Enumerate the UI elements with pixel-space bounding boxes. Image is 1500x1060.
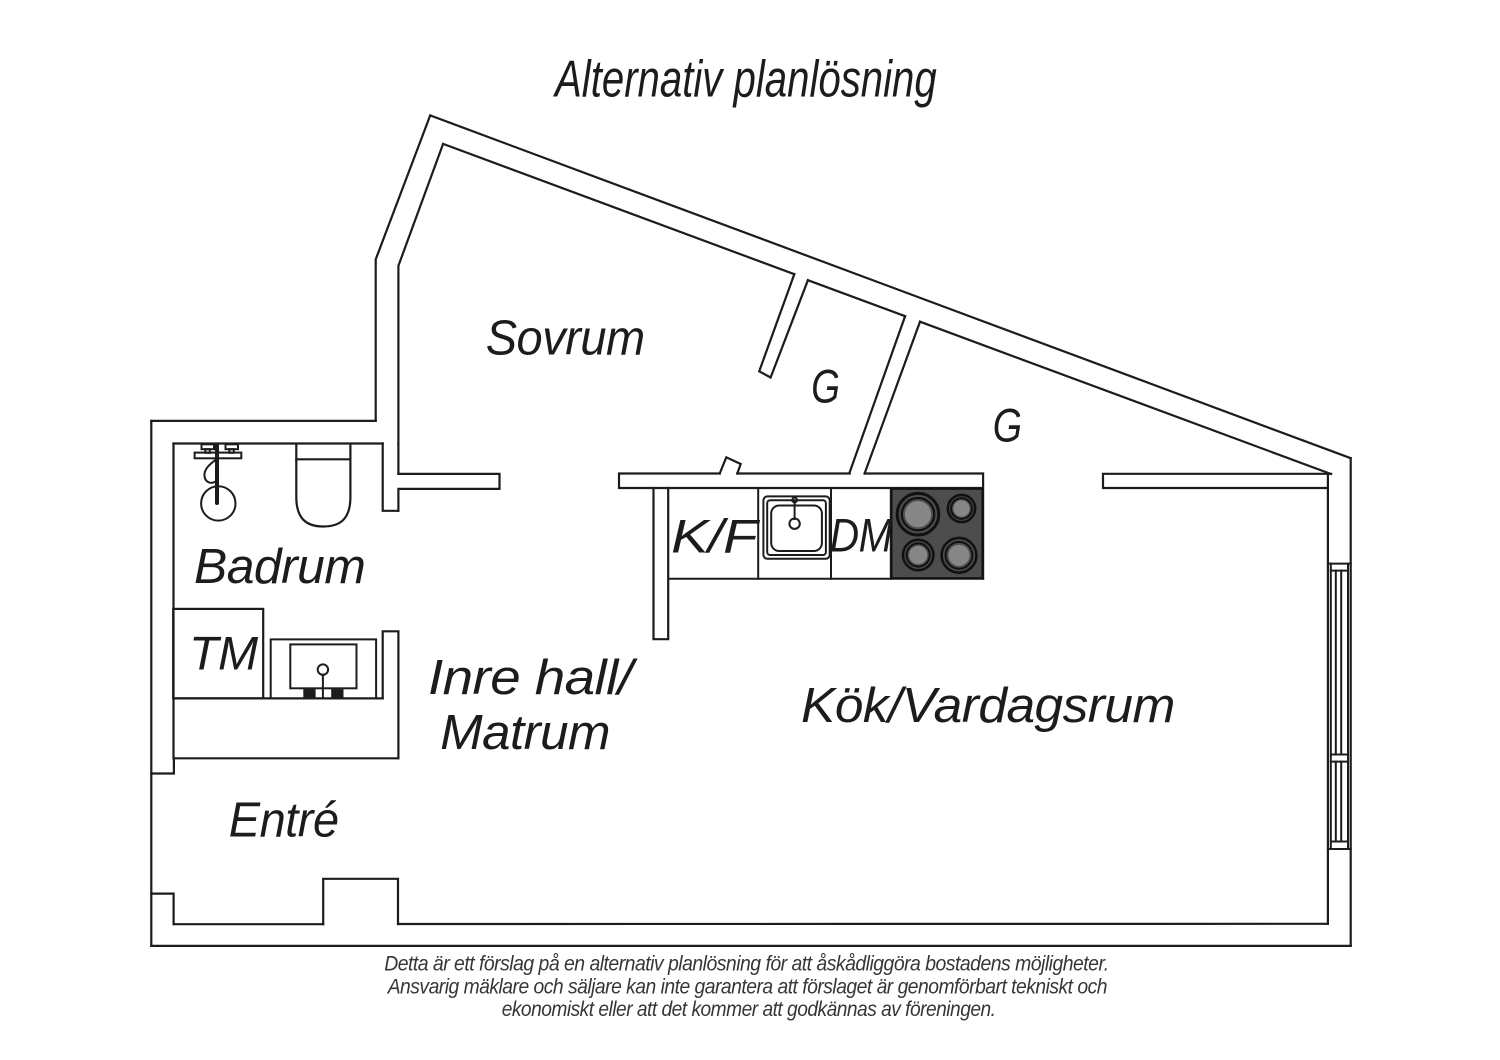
svg-text:Sovrum: Sovrum	[486, 311, 645, 365]
svg-text:Alternativ planlösning: Alternativ planlösning	[553, 51, 937, 109]
svg-text:Matrum: Matrum	[440, 706, 610, 760]
svg-text:Inre hall/: Inre hall/	[428, 651, 638, 705]
svg-text:DM: DM	[830, 509, 894, 562]
svg-text:Detta är ett förslag på en alt: Detta är ett förslag på en alternativ pl…	[384, 952, 1108, 975]
svg-text:ekonomiskt eller att det komme: ekonomiskt eller att det kommer att godk…	[502, 998, 996, 1021]
svg-text:Kök/Vardagsrum: Kök/Vardagsrum	[801, 679, 1175, 733]
svg-text:G: G	[993, 399, 1022, 452]
svg-text:TM: TM	[189, 627, 259, 680]
svg-text:K/F: K/F	[671, 509, 760, 562]
svg-text:G: G	[811, 360, 839, 413]
svg-text:Badrum: Badrum	[194, 540, 365, 594]
svg-text:Ansvarig mäklare och säljare k: Ansvarig mäklare och säljare kan inte ga…	[386, 976, 1107, 999]
svg-text:Entré: Entré	[229, 793, 339, 847]
